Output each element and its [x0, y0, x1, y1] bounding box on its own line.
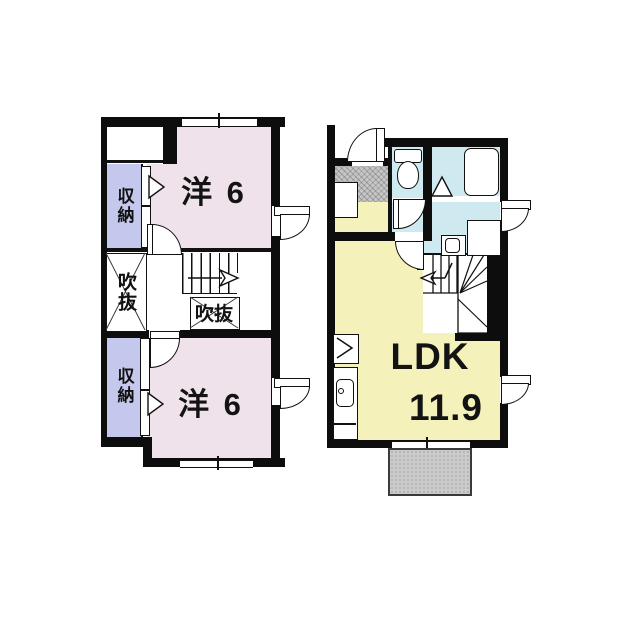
closet-top-label: 収納 — [112, 187, 137, 225]
toilet-bath-divider — [423, 138, 432, 235]
f2-wall-stub — [163, 127, 177, 164]
closet-bottom-label: 収納 — [112, 367, 137, 405]
bath-door-icon — [432, 177, 452, 196]
closet-top: 収納 — [107, 164, 143, 248]
faucet-dot — [338, 388, 344, 394]
terrace — [388, 448, 472, 496]
room-top-south-line — [107, 248, 271, 252]
f2-east-door-bottom-arc — [280, 386, 310, 409]
f2-window-south-tick — [217, 456, 219, 470]
backdoor-arc — [501, 208, 529, 232]
ldk-door-gap — [395, 232, 423, 241]
f1-wall-north — [385, 138, 508, 147]
f2-window-north-tick — [218, 113, 220, 128]
room-top-label: 洋 6 — [158, 168, 270, 210]
toilet-west-wall — [388, 147, 392, 232]
void-left-label: 吹抜 — [106, 253, 145, 330]
toilet-bowl — [397, 161, 419, 189]
closet-bottom: 収納 — [107, 335, 143, 437]
washing-machine — [467, 220, 501, 256]
closet-bottom-door-panel — [140, 338, 150, 390]
counter-divider-line — [333, 423, 356, 425]
ldk-label: LDK — [365, 336, 495, 378]
washbasin-bowl — [445, 238, 460, 253]
shoe-cabinet — [334, 182, 358, 218]
f2-wall-east — [271, 117, 280, 467]
f1-stairs — [423, 255, 500, 333]
room-bottom-label: 洋 6 — [155, 380, 267, 422]
void-center-label: 吹抜 — [190, 297, 238, 328]
entrance-door-arc — [347, 128, 377, 162]
f2-stairs-up-arrow-icon — [182, 262, 242, 290]
ldk-area-label: 11.9 — [381, 387, 511, 429]
refrigerator-chevron-icon — [333, 334, 357, 362]
f2-east-door-top-arc — [280, 214, 310, 240]
bathtub — [464, 148, 499, 196]
floor-plan-canvas: 収納 収納 吹抜 — [0, 0, 640, 640]
room-bottom-fill-b — [152, 437, 271, 458]
